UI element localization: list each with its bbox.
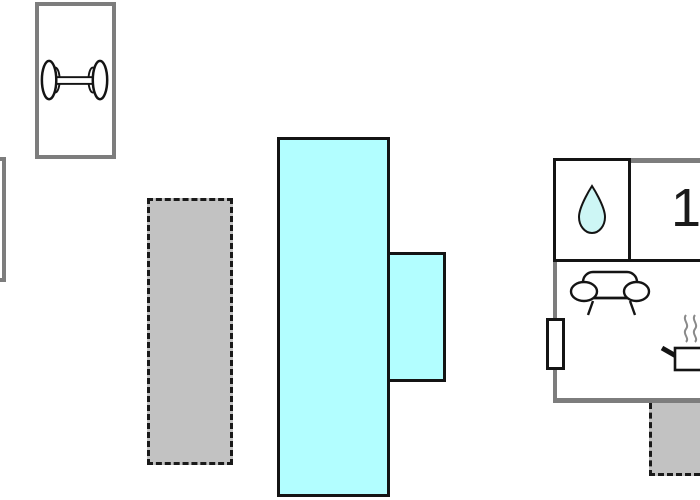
parking-area-dashed bbox=[147, 198, 233, 465]
sofa-icon bbox=[567, 266, 651, 318]
pool-main-basin bbox=[277, 137, 390, 497]
terrace-area-dashed bbox=[649, 403, 700, 476]
fitness-room bbox=[35, 2, 116, 159]
cooking-pot-icon bbox=[656, 308, 700, 374]
window-marker bbox=[546, 318, 565, 370]
room-number-label: 1 bbox=[666, 181, 700, 235]
dumbbell-icon bbox=[39, 57, 112, 105]
neighbor-room-partial bbox=[0, 157, 6, 282]
pool-side-basin bbox=[387, 252, 446, 382]
water-drop-icon bbox=[577, 184, 607, 236]
room-bathroom bbox=[553, 158, 631, 262]
floorplan-canvas: 1 bbox=[0, 0, 700, 500]
steam-icon bbox=[685, 315, 696, 342]
